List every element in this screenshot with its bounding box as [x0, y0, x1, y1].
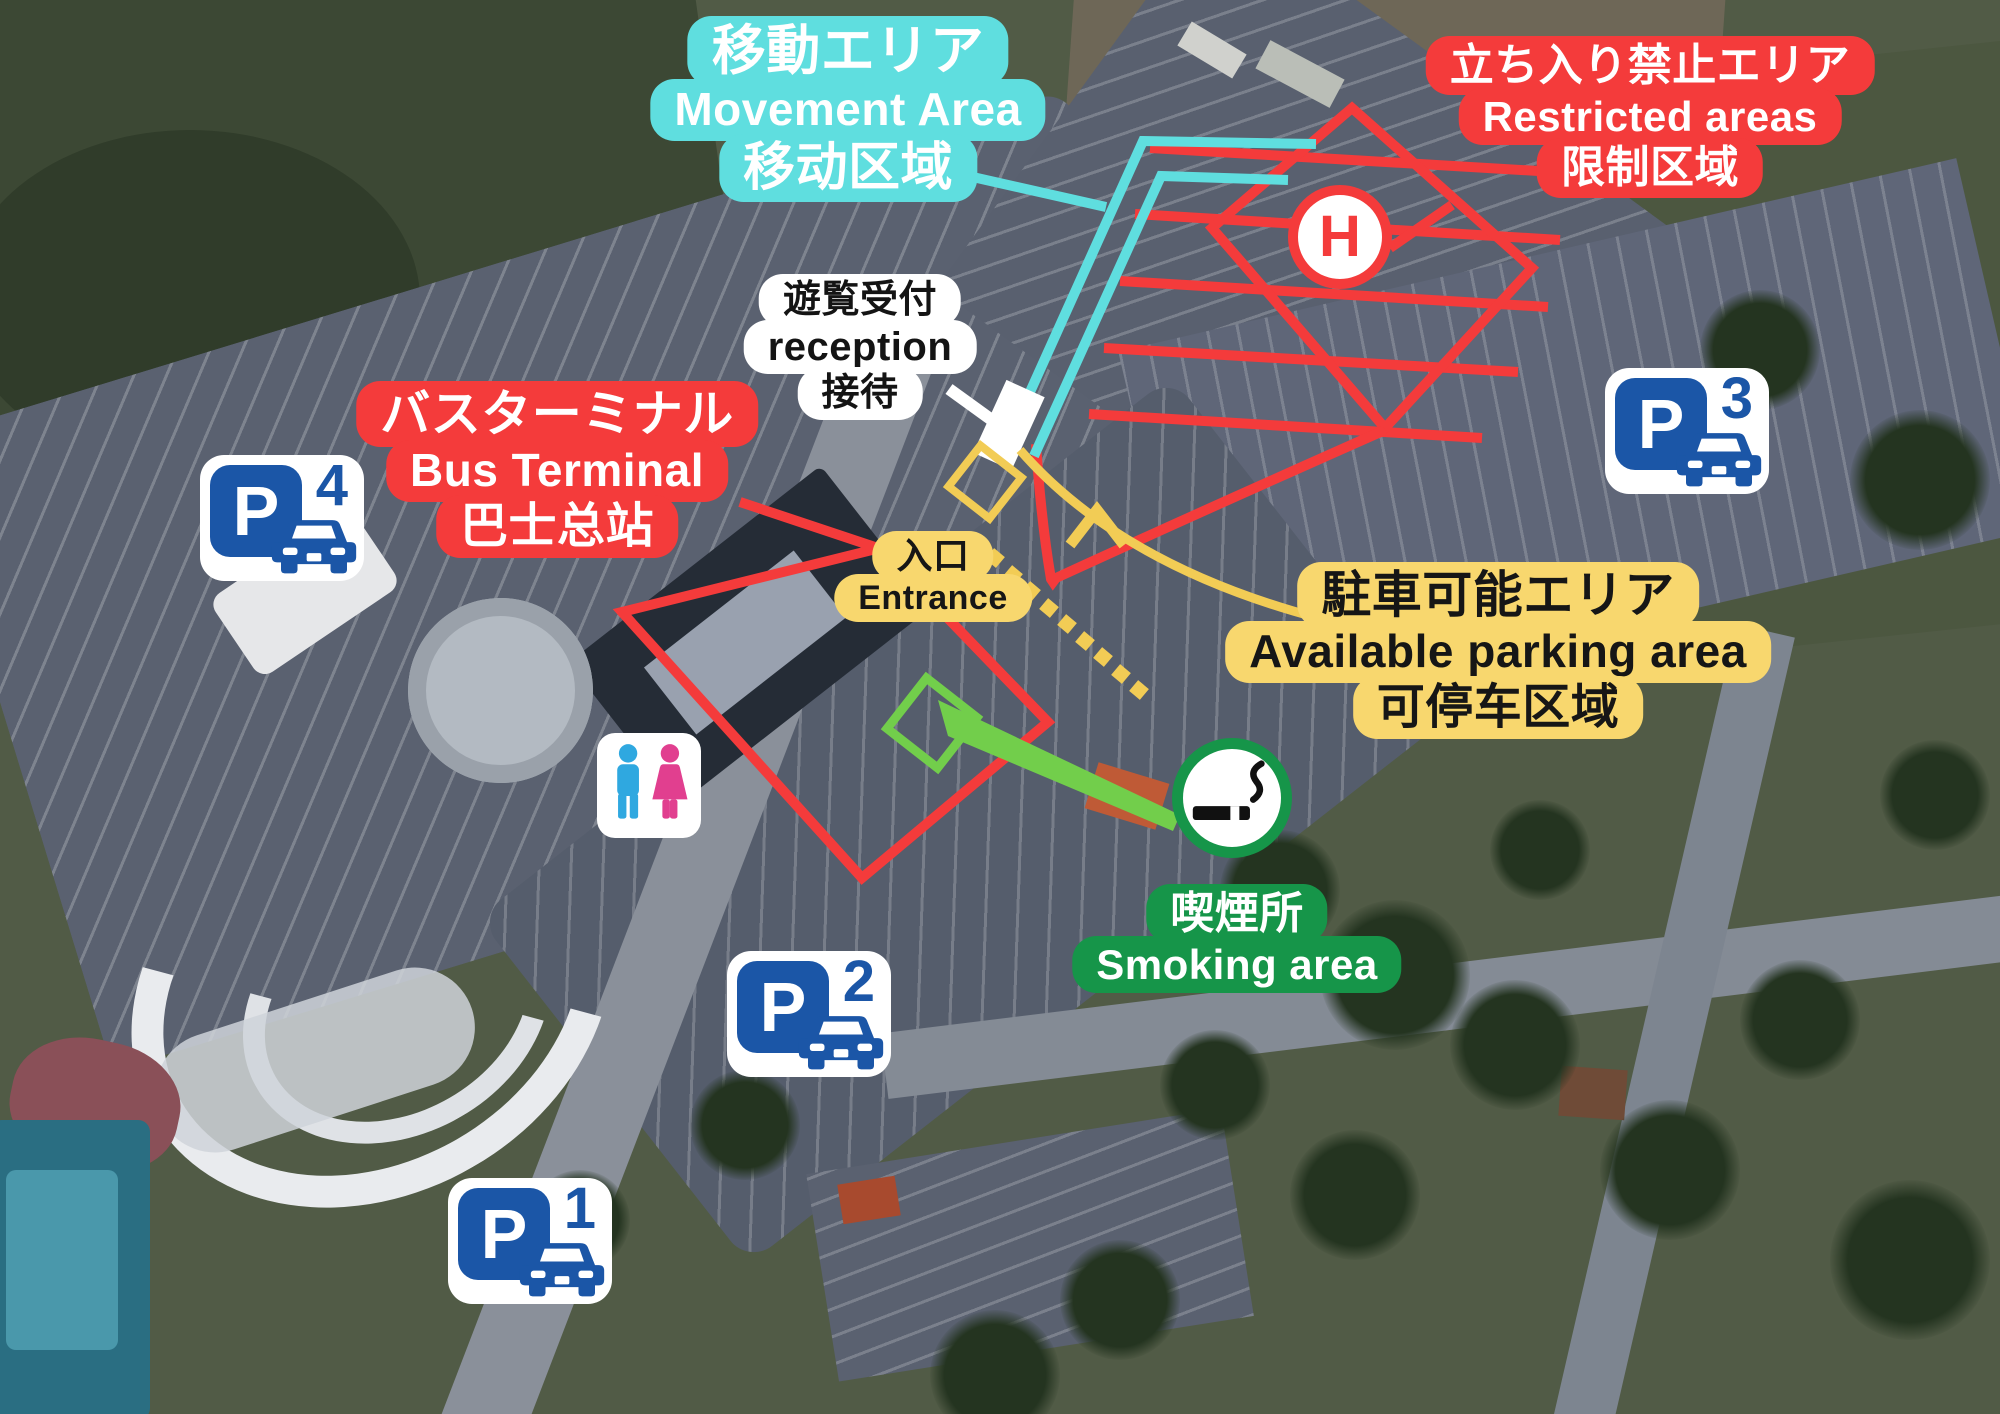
label-line: 限制区域	[1537, 138, 1763, 197]
label-reception: 遊覧受付 reception 接待	[744, 274, 977, 420]
parking-icon-p4: P 4	[200, 455, 364, 581]
label-smoking-area: 喫煙所 Smoking area	[1072, 884, 1401, 993]
label-line: 喫煙所	[1146, 884, 1328, 943]
parking-badge: P 4	[200, 455, 364, 581]
label-restricted-area: 立ち入り禁止エリア Restricted areas 限制区域	[1426, 36, 1875, 198]
label-line: reception	[744, 320, 977, 375]
label-line: 遊覧受付	[759, 274, 961, 327]
label-line: Available parking area	[1225, 621, 1771, 683]
restricted-hatch-line	[1089, 414, 1482, 438]
restroom-icon	[597, 733, 701, 838]
facility-map: 移動エリア Movement Area 移动区域 立ち入り禁止エリア Restr…	[0, 0, 2000, 1414]
parking-number: 1	[564, 1180, 596, 1238]
label-bus-terminal: バスターミナル Bus Terminal 巴士总站	[356, 381, 758, 558]
label-line: 可停车区域	[1353, 676, 1644, 740]
cigarette-icon	[1183, 749, 1281, 847]
car-icon	[797, 1007, 885, 1073]
label-line: 移動エリア	[688, 16, 1009, 86]
label-line: 立ち入り禁止エリア	[1426, 36, 1875, 95]
path-dot	[1039, 598, 1059, 618]
helipad-letter: H	[1319, 208, 1361, 266]
path-dot	[1057, 614, 1077, 634]
parking-badge: P 1	[448, 1178, 612, 1304]
male-female-icon	[603, 740, 695, 832]
parking-icon-p1: P 1	[448, 1178, 612, 1304]
helipad-icon: H	[1288, 185, 1392, 289]
path-dot	[1111, 664, 1131, 684]
label-entrance: 入口 Entrance	[834, 531, 1032, 622]
male-icon	[617, 744, 639, 818]
parking-number: 2	[843, 953, 875, 1011]
parking-icon-p2: P 2	[727, 951, 891, 1077]
label-line: Movement Area	[650, 79, 1045, 141]
parking-number: 3	[1721, 370, 1753, 428]
label-line: Restricted areas	[1459, 88, 1842, 145]
car-icon	[518, 1234, 606, 1300]
parking-badge: P 3	[1605, 368, 1769, 494]
smoking-pointer-line	[938, 700, 1180, 831]
entrance-path-arrow	[1070, 510, 1124, 545]
car-icon	[1675, 424, 1763, 490]
label-line: Smoking area	[1072, 936, 1401, 993]
label-line: Entrance	[834, 574, 1032, 622]
parking-number: 4	[316, 457, 348, 515]
label-line: 移动区域	[719, 134, 977, 202]
label-line: Bus Terminal	[386, 440, 728, 502]
label-line: 接待	[797, 367, 922, 420]
car-icon	[270, 511, 358, 577]
restricted-boundary-curve	[1036, 430, 1385, 582]
path-dot	[1129, 680, 1149, 700]
label-line: 巴士总站	[436, 495, 678, 559]
path-dot	[1093, 647, 1113, 667]
path-dot	[1075, 631, 1095, 651]
label-movement-area: 移動エリア Movement Area 移动区域	[650, 16, 1045, 202]
parking-icon-p3: P 3	[1605, 368, 1769, 494]
label-available-parking: 駐車可能エリア Available parking area 可停车区域	[1225, 562, 1771, 739]
smoking-icon	[1172, 738, 1292, 858]
parking-badge: P 2	[727, 951, 891, 1077]
female-icon	[652, 744, 687, 818]
label-line: 駐車可能エリア	[1297, 562, 1699, 628]
label-line: バスターミナル	[356, 381, 758, 447]
